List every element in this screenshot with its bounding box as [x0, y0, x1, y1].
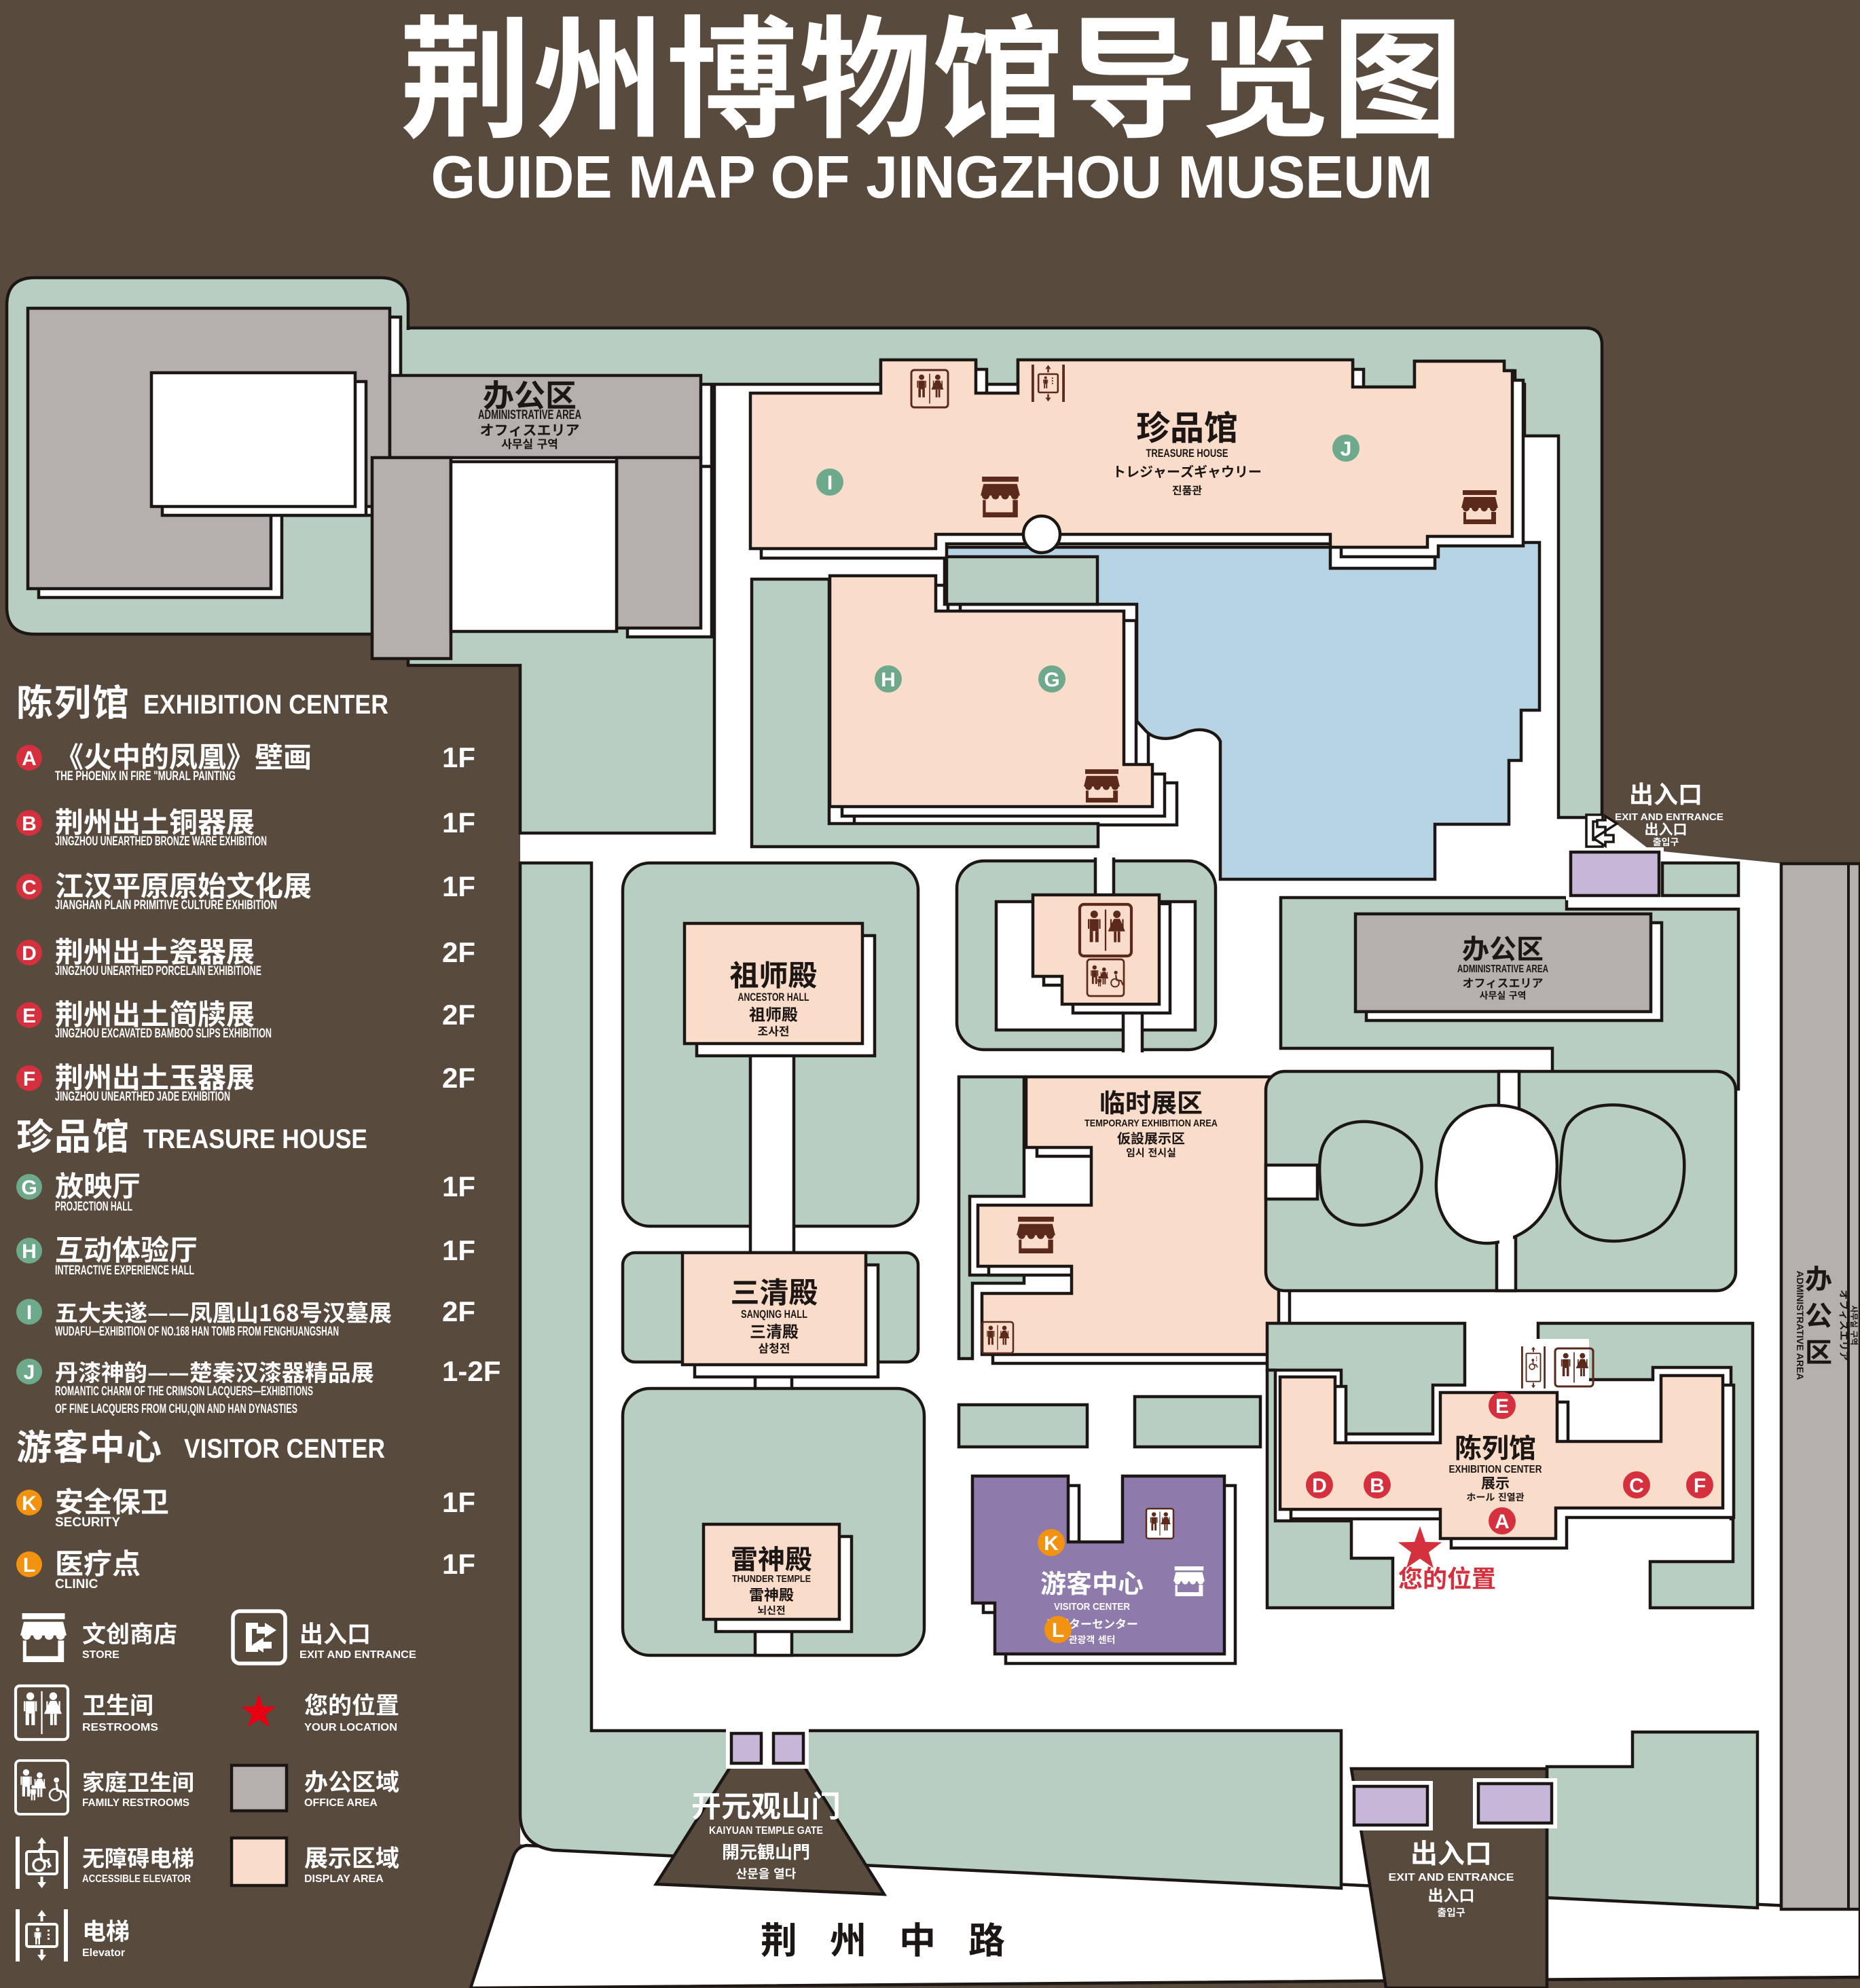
svg-text:2F: 2F — [442, 936, 475, 968]
svg-text:2F: 2F — [442, 1295, 475, 1327]
svg-text:SANQING HALL: SANQING HALL — [741, 1308, 807, 1321]
svg-text:1-2F: 1-2F — [442, 1355, 500, 1387]
svg-text:VISITOR CENTER: VISITOR CENTER — [184, 1434, 385, 1464]
svg-text:ADMINISTRATIVE AREA: ADMINISTRATIVE AREA — [1457, 963, 1548, 975]
svg-text:C: C — [1629, 1475, 1644, 1497]
svg-text:TREASURE HOUSE: TREASURE HOUSE — [143, 1124, 367, 1154]
svg-text:SECURITY: SECURITY — [55, 1515, 120, 1530]
svg-text:EXIT AND ENTRANCE: EXIT AND ENTRANCE — [1615, 811, 1724, 823]
svg-text:E: E — [22, 1005, 36, 1027]
svg-text:J: J — [24, 1361, 35, 1384]
svg-text:B: B — [22, 813, 37, 835]
svg-text:1F: 1F — [442, 807, 475, 839]
svg-text:1F: 1F — [442, 1171, 475, 1202]
svg-text:D: D — [1312, 1475, 1327, 1497]
svg-text:F: F — [1694, 1475, 1706, 1497]
svg-text:ACCESSIBLE ELEVATOR: ACCESSIBLE ELEVATOR — [82, 1873, 191, 1885]
svg-text:1F: 1F — [442, 870, 475, 902]
svg-text:JINGZHOU UNEARTHED JADE EXHIBI: JINGZHOU UNEARTHED JADE EXHIBITION — [55, 1090, 230, 1104]
svg-text:J: J — [1341, 438, 1352, 460]
svg-text:I: I — [827, 472, 833, 494]
svg-text:E: E — [1495, 1395, 1509, 1418]
svg-text:B: B — [1370, 1475, 1385, 1497]
svg-text:K: K — [1044, 1532, 1059, 1555]
svg-text:G: G — [21, 1177, 37, 1199]
svg-text:TREASURE HOUSE: TREASURE HOUSE — [1146, 447, 1228, 460]
svg-text:CLINIC: CLINIC — [55, 1577, 98, 1591]
svg-text:D: D — [22, 942, 37, 965]
svg-text:OFFICE AREA: OFFICE AREA — [304, 1797, 378, 1809]
svg-text:Elevator: Elevator — [82, 1947, 125, 1959]
svg-text:EXIT AND ENTRANCE: EXIT AND ENTRANCE — [299, 1649, 416, 1661]
svg-text:VISITOR CENTER: VISITOR CENTER — [1054, 1601, 1130, 1613]
svg-text:1F: 1F — [442, 741, 475, 773]
svg-text:ADMINISTRATIVE AREA: ADMINISTRATIVE AREA — [1795, 1271, 1806, 1380]
svg-text:RESTROOMS: RESTROOMS — [82, 1722, 158, 1733]
svg-text:GUIDE MAP OF JINGZHOU MUSEUM: GUIDE MAP OF JINGZHOU MUSEUM — [431, 143, 1433, 210]
svg-text:EXHIBITION CENTER: EXHIBITION CENTER — [1449, 1464, 1542, 1475]
svg-text:JINGZHOU EXCAVATED BAMBOO SLIP: JINGZHOU EXCAVATED BAMBOO SLIPS EXHIBITI… — [55, 1027, 272, 1041]
svg-text:WUDAFU—EXHIBITION OF NO.168 HA: WUDAFU—EXHIBITION OF NO.168 HAN TOMB FRO… — [55, 1325, 339, 1339]
svg-text:OF FINE LACQUERS FROM CHU,QIN: OF FINE LACQUERS FROM CHU,QIN AND HAN DY… — [55, 1402, 297, 1416]
svg-text:H: H — [22, 1240, 37, 1263]
svg-text:K: K — [22, 1492, 37, 1515]
svg-text:ROMANTIC CHARM OF THE CRIMSON: ROMANTIC CHARM OF THE CRIMSON LACQUERS—E… — [55, 1384, 313, 1399]
svg-text:THUNDER TEMPLE: THUNDER TEMPLE — [732, 1573, 811, 1585]
svg-text:A: A — [1495, 1511, 1510, 1533]
svg-text:PROJECTION HALL: PROJECTION HALL — [55, 1200, 132, 1214]
svg-text:JINGZHOU UNEARTHED PORCELAIN E: JINGZHOU UNEARTHED PORCELAIN EXHIBITIONE — [55, 964, 261, 978]
svg-text:C: C — [22, 877, 37, 899]
svg-text:H: H — [881, 669, 896, 691]
svg-text:EXHIBITION CENTER: EXHIBITION CENTER — [143, 690, 388, 720]
svg-text:ANCESTOR HALL: ANCESTOR HALL — [738, 991, 809, 1004]
svg-text:FAMILY RESTROOMS: FAMILY RESTROOMS — [82, 1797, 189, 1809]
svg-text:JINGZHOU UNEARTHED BRONZE WARE: JINGZHOU UNEARTHED BRONZE WARE EXHIBITIO… — [55, 834, 267, 849]
svg-text:2F: 2F — [442, 1062, 475, 1094]
svg-text:1F: 1F — [442, 1486, 475, 1518]
svg-text:DISPLAY AREA: DISPLAY AREA — [304, 1873, 384, 1885]
svg-text:TEMPORARY EXHIBITION AREA: TEMPORARY EXHIBITION AREA — [1084, 1118, 1218, 1129]
svg-text:JIANGHAN PLAIN PRIMITIVE CULTU: JIANGHAN PLAIN PRIMITIVE CULTURE EXHIBIT… — [55, 898, 277, 913]
svg-text:G: G — [1044, 669, 1059, 691]
svg-text:THE PHOENIX IN FIRE "MURAL PAI: THE PHOENIX IN FIRE "MURAL PAINTING — [55, 769, 236, 784]
svg-text:L: L — [23, 1554, 35, 1577]
svg-text:1F: 1F — [442, 1548, 475, 1580]
svg-text:F: F — [23, 1068, 35, 1090]
svg-text:EXIT AND ENTRANCE: EXIT AND ENTRANCE — [1389, 1872, 1514, 1883]
svg-text:I: I — [26, 1302, 32, 1324]
svg-text:2F: 2F — [442, 999, 475, 1031]
svg-text:STORE: STORE — [82, 1649, 120, 1661]
svg-text:1F: 1F — [442, 1234, 475, 1266]
svg-text:ADMINISTRATIVE AREA: ADMINISTRATIVE AREA — [478, 408, 581, 422]
svg-text:KAIYUAN TEMPLE GATE: KAIYUAN TEMPLE GATE — [709, 1825, 823, 1837]
svg-text:INTERACTIVE EXPERIENCE HALL: INTERACTIVE EXPERIENCE HALL — [55, 1264, 194, 1278]
svg-text:A: A — [22, 748, 37, 770]
svg-text:L: L — [1052, 1619, 1064, 1642]
svg-text:YOUR LOCATION: YOUR LOCATION — [304, 1722, 397, 1733]
